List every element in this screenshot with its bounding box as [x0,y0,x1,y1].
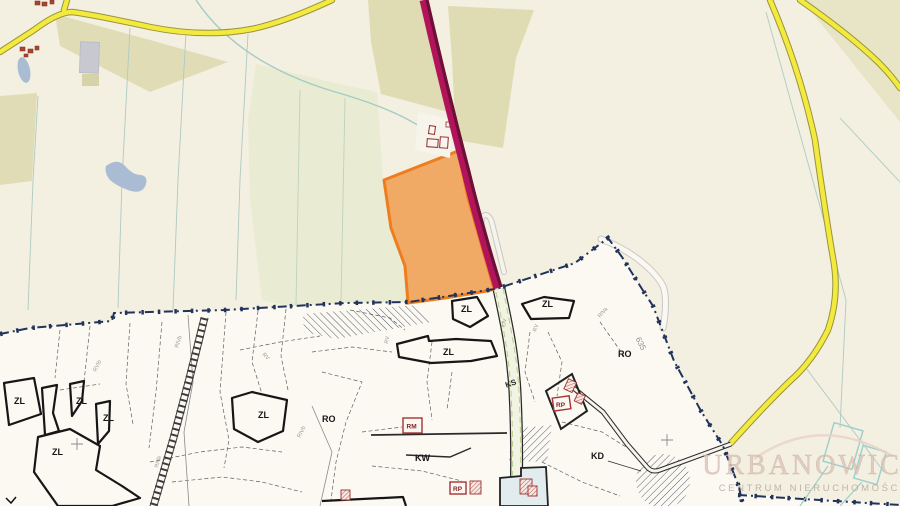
zone-label-ro: RO [618,349,632,359]
zone-label-zl: ZL [14,396,25,406]
zone-label-zl: ZL [52,447,63,457]
zone-label-rp: RP [453,486,463,493]
map-canvas[interactable]: ZL ZL ZL ZL ZL ZL ZL ZL RO RO KW KD KS 6… [0,0,900,506]
zone-label-rp: RP [556,402,566,409]
watermark-brand: URBANOWICZ [702,450,900,481]
zone-label-zl: ZL [103,413,114,423]
zone-label-zl: ZL [542,299,553,309]
zone-label-zl: ZL [443,347,454,357]
watermark-subtitle: CENTRUM NIERUCHOMOŚCI [719,482,900,494]
building-icons-parcel [415,112,452,158]
zone-label-rm: RM [407,424,417,431]
zone-label-kd: KD [591,451,604,461]
zone-label-zl: ZL [76,396,87,406]
map-viewport[interactable]: ZL ZL ZL ZL ZL ZL ZL ZL RO RO KW KD KS 6… [0,0,900,506]
zone-label-kw: KW [415,453,430,463]
zone-label-ro: RO [322,414,336,424]
zone-label-zl: ZL [461,304,472,314]
zone-label-zl: ZL [258,410,269,420]
